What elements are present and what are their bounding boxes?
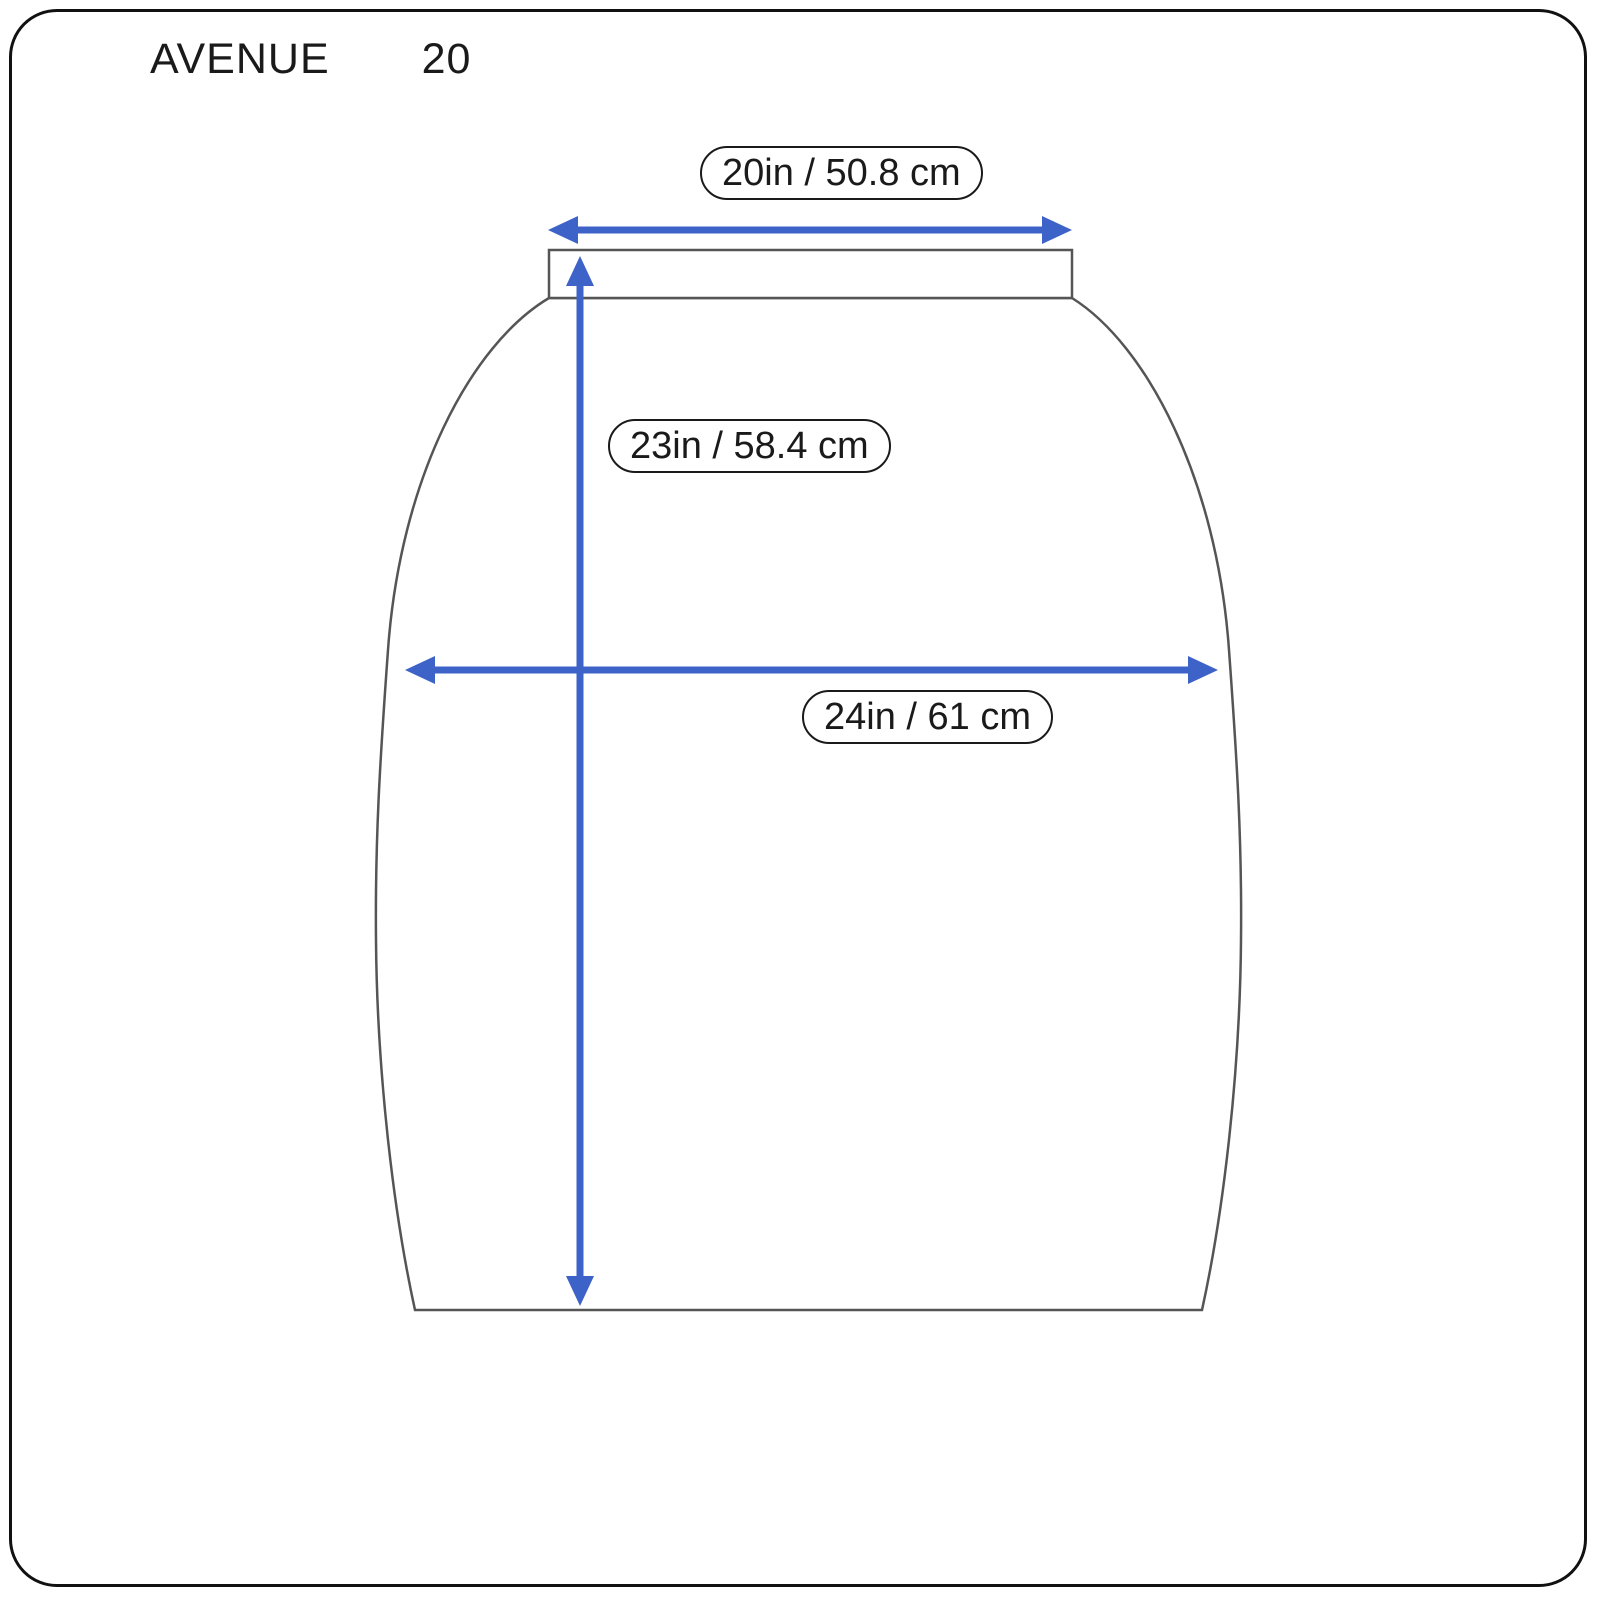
garment-diagram [0,0,1600,1600]
measurement-label-waist-text: 20in / 50.8 cm [722,152,961,195]
waistband-outline [549,250,1072,298]
measurement-label-hip-text: 24in / 61 cm [824,696,1031,739]
measurement-label-waist: 20in / 50.8 cm [700,146,983,200]
size-chart-page: AVENUE 20 20in / 50.8 cm 23in / [0,0,1600,1600]
measurement-label-hip: 24in / 61 cm [802,690,1053,744]
measurement-label-length: 23in / 58.4 cm [608,419,891,473]
waist-width-arrow [548,216,1072,244]
measurement-label-length-text: 23in / 58.4 cm [630,425,869,468]
